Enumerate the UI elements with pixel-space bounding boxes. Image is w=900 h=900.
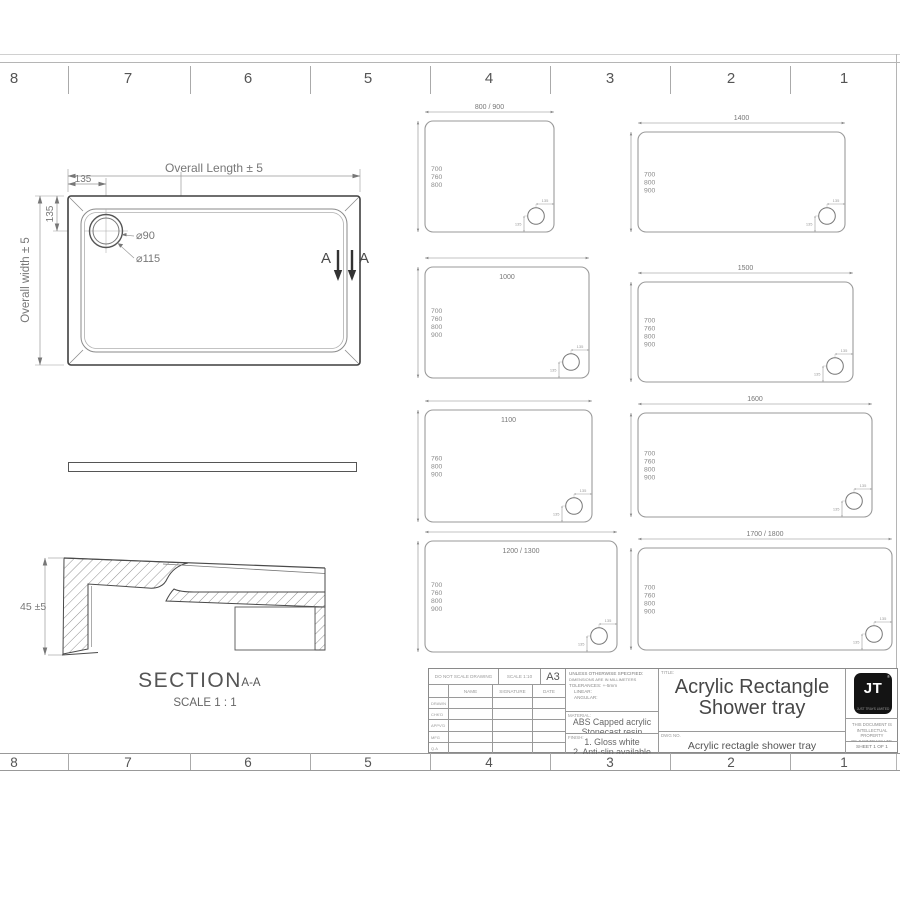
variant-height-option: 760: [644, 459, 656, 466]
approval-row-cell: [449, 698, 493, 709]
jt-logo-caption: JUST TRAYS LIMITED: [854, 707, 892, 711]
drain-outer-dia-label: ⌀115: [136, 253, 160, 265]
section-scale-label: SCALE 1 : 1: [173, 697, 236, 709]
sheet-top-inner-line: [0, 62, 900, 63]
ruler-bottom-number-2: 2: [727, 755, 735, 770]
drain-offset-v-label: 135: [853, 640, 860, 645]
dim-135-h-label: 135: [75, 174, 92, 185]
approval-row-cell: [533, 743, 566, 754]
overall-width-label: Overall width ± 5: [20, 237, 32, 323]
approval-row-cell: [449, 743, 493, 754]
variant-outline: [425, 541, 617, 652]
variant-1500: 1500700760800900135135: [624, 262, 863, 395]
ruler-top-number-5: 5: [364, 70, 372, 87]
variant-width-label: 800 / 900: [475, 104, 504, 111]
variant-drain-circle: [591, 628, 608, 645]
variant-height-option: 900: [644, 609, 656, 616]
approval-row-cell: [533, 732, 566, 743]
scale-note: SCALE 1:10: [499, 669, 541, 685]
variant-width-label: 1600: [747, 396, 763, 403]
variant-drain-circle: [866, 626, 883, 643]
signature-header: SIGNATURE: [493, 685, 533, 698]
ruler-bottom-number-6: 6: [244, 755, 252, 770]
variant-height-option: 900: [644, 475, 656, 482]
approval-row-cell: [493, 732, 533, 743]
sheet-top-outer-line: [0, 54, 900, 55]
ruler-bottom-divider: [790, 753, 791, 770]
ruler-top-number-3: 3: [606, 70, 614, 87]
variant-width-label: 1100: [501, 417, 516, 424]
section-wall-hatch: [63, 558, 188, 654]
approval-row-cell: [493, 743, 533, 754]
approval-row-cell: [493, 720, 533, 731]
variant-drain-circle: [566, 498, 583, 515]
variant-width-label: 1500: [738, 265, 754, 272]
variant-height-option: 900: [644, 188, 656, 195]
property-line: INTELLECTUAL PROPERTY: [846, 728, 898, 739]
variant-1400: 1400700800900135135: [624, 112, 855, 245]
variant-height-option: 760: [431, 316, 443, 323]
section-title-suffix: A-A: [241, 677, 261, 689]
section-view: 45 ±5 SECTION A-A SCALE 1 : 1: [18, 545, 388, 725]
drain-offset-h-label: 135: [860, 483, 867, 488]
variant-height-option: 760: [644, 593, 656, 600]
variant-height-option: 760: [431, 456, 443, 463]
drawing-title-line1: Acrylic Rectangle: [659, 677, 845, 698]
section-right-strip-hatch: [315, 607, 325, 650]
drain-offset-h-label: 135: [577, 344, 584, 349]
variant-drain-circle: [563, 354, 580, 371]
variant-height-option: 800: [644, 334, 656, 341]
side-view: [68, 462, 357, 472]
variant-1600: 1600700760800900135135: [624, 393, 882, 530]
approval-row-cell: [533, 709, 566, 720]
variant-height-option: 760: [431, 590, 443, 597]
approval-row-label: DRAWN: [429, 698, 449, 709]
variant-drain-circle: [846, 493, 863, 510]
variant-outline: [638, 548, 892, 650]
variant-height-option: 800: [431, 598, 443, 605]
variant-height-option: 700: [431, 166, 443, 173]
approval-row-cell: [449, 709, 493, 720]
material-label: MATERIAL:: [568, 713, 591, 718]
ruler-top-number-4: 4: [485, 70, 493, 87]
ruler-top-tick: [790, 66, 791, 94]
drain-offset-h-label: 135: [833, 198, 840, 203]
property-line: THIS DOCUMENT IS: [846, 722, 898, 728]
variant-800-900: 800 / 900700760800135135: [411, 101, 564, 245]
approval-row-label: Q.A: [429, 743, 449, 754]
bottom-band-bottom-line: [0, 770, 900, 771]
drain-offset-h-label: 135: [880, 616, 887, 621]
section-floor-hatch: [166, 589, 325, 607]
ruler-top-tick: [310, 66, 311, 94]
approval-row-cell: [449, 720, 493, 731]
ruler-top-number-8: 8: [10, 70, 18, 87]
variant-height-option: 700: [431, 582, 443, 589]
title-block: DO NOT SCALE DRAWING SCALE 1:10 A3 NAME …: [428, 668, 898, 753]
section-marker-letter-right: A: [359, 250, 369, 267]
variant-height-option: 700: [644, 585, 656, 592]
ruler-bottom-divider: [68, 753, 69, 770]
ruler-top-tick: [190, 66, 191, 94]
variant-1000: 1000700760800900135135: [411, 247, 599, 391]
approval-row-cell: [533, 720, 566, 731]
variant-height-option: 700: [431, 308, 443, 315]
ruler-bottom-divider: [190, 753, 191, 770]
drain-offset-h-label: 135: [605, 618, 612, 623]
drain-offset-h-label: 135: [580, 488, 587, 493]
variant-outline: [638, 413, 872, 517]
drawing-title-line2: Shower tray: [659, 698, 845, 719]
ruler-top-number-2: 2: [727, 70, 735, 87]
ruler-top-number-6: 6: [244, 70, 252, 87]
ruler-bottom-number-4: 4: [485, 755, 493, 770]
variant-height-option: 800: [644, 467, 656, 474]
section-height-dim-label: 45 ±5: [20, 601, 46, 613]
ruler-bottom-divider: [550, 753, 551, 770]
drain-offset-v-label: 135: [553, 512, 560, 517]
variant-width-label: 1200 / 1300: [503, 548, 540, 555]
property-note-cell: THIS DOCUMENT IS INTELLECTUAL PROPERTY O…: [846, 719, 898, 742]
material-block: MATERIAL: ABS Capped acrylic Stonecast r…: [566, 711, 659, 733]
tray-outer-edge: [68, 196, 360, 365]
variant-height-option: 700: [644, 451, 656, 458]
do-not-scale-note: DO NOT SCALE DRAWING: [429, 669, 499, 685]
approval-row-cell: [493, 698, 533, 709]
jt-logo: ® JT JUST TRAYS LIMITED: [854, 673, 892, 714]
section-marker-letter-left: A: [321, 250, 331, 267]
variant-height-option: 900: [431, 332, 443, 339]
finish-label: FINISH:: [568, 735, 584, 740]
approval-row-label: MFG: [429, 732, 449, 743]
ruler-top-tick: [68, 66, 69, 94]
date-header: DATE: [533, 685, 566, 698]
variant-drain-circle: [528, 208, 545, 225]
drain-offset-v-label: 135: [578, 642, 585, 647]
variant-width-label: 1000: [499, 274, 515, 281]
section-title: SECTION: [138, 669, 242, 692]
drain-offset-v-label: 135: [833, 507, 840, 512]
logo-cell: ® JT JUST TRAYS LIMITED: [846, 669, 898, 719]
spec-block: UNLESS OTHERWISE SPECIFIED: DIMENSIONS A…: [566, 669, 659, 711]
variant-1200-1300: 1200 / 1300700760800900135135: [411, 521, 627, 665]
variant-height-option: 900: [431, 606, 443, 613]
ruler-bottom-number-3: 3: [606, 755, 614, 770]
approval-row-cell: [449, 732, 493, 743]
drain-offset-v-label: 135: [550, 368, 557, 373]
approval-row-cell: [493, 709, 533, 720]
finish-line: 2. Anti-slip available: [566, 748, 658, 755]
approval-label-header: [429, 685, 449, 698]
ruler-bottom-divider: [430, 753, 431, 770]
overall-length-label: Overall Length ± 5: [165, 161, 263, 175]
title-label: TITLE:: [661, 670, 674, 675]
ruler-bottom-divider: [310, 753, 311, 770]
variant-width-label: 1400: [734, 115, 750, 122]
approval-row-label: CHK'D: [429, 709, 449, 720]
drain-offset-h-label: 135: [542, 198, 549, 203]
dwg-no-value: Acrylic rectagle shower tray: [659, 740, 845, 752]
dwg-no-label: DWG NO.: [661, 733, 681, 738]
ruler-top-tick: [670, 66, 671, 94]
dwg-no-cell: DWG NO. Acrylic rectagle shower tray: [659, 732, 846, 754]
variant-height-option: 760: [431, 174, 443, 181]
variant-height-option: 900: [644, 342, 656, 349]
jt-logo-text: JT: [854, 680, 892, 697]
paper-size: A3: [541, 669, 566, 685]
variant-drain-circle: [819, 208, 836, 225]
drain-offset-v-label: 135: [814, 372, 821, 377]
variant-height-option: 700: [644, 318, 656, 325]
ruler-bottom-number-8: 8: [10, 755, 18, 770]
variant-height-option: 900: [431, 472, 443, 479]
approval-row-label: APPV'D: [429, 720, 449, 731]
name-header: NAME: [449, 685, 493, 698]
drawing-sheet: 87654321 87654321 Overall Length ± 5 Ove…: [0, 0, 900, 900]
variant-1100: 1100760800900135135: [411, 390, 602, 535]
variant-height-option: 800: [431, 324, 443, 331]
spec-line: ANGULAR:: [569, 695, 655, 701]
ruler-bottom-divider: [670, 753, 671, 770]
drain-offset-h-label: 135: [841, 348, 848, 353]
variant-height-option: 800: [644, 180, 656, 187]
variant-outline: [638, 132, 845, 232]
registered-mark: ®: [887, 674, 890, 679]
ruler-top-number-7: 7: [124, 70, 132, 87]
ruler-top-number-1: 1: [840, 70, 848, 87]
variant-height-option: 800: [644, 601, 656, 608]
finish-block: FINISH: 1. Gloss white 2. Anti-slip avai…: [566, 733, 659, 754]
sheet-number-cell: SHEET 1 OF 1: [846, 742, 898, 753]
variant-1700-1800: 1700 / 1800700760800900135135: [624, 528, 900, 663]
drain-offset-v-label: 135: [515, 222, 522, 227]
ruler-top-tick: [550, 66, 551, 94]
variant-height-option: 800: [431, 464, 443, 471]
drain-inner-dia-label: ⌀90: [136, 230, 155, 242]
variant-height-option: 700: [644, 172, 656, 179]
approval-row-cell: [533, 698, 566, 709]
section-void: [235, 607, 315, 650]
ruler-bottom-number-7: 7: [124, 755, 132, 770]
variant-width-label: 1700 / 1800: [747, 531, 784, 538]
ruler-bottom-number-5: 5: [364, 755, 372, 770]
dim-135-v-label: 135: [45, 205, 56, 222]
title-cell: TITLE: Acrylic Rectangle Shower tray: [659, 669, 846, 732]
variant-height-option: 760: [644, 326, 656, 333]
variant-height-option: 800: [431, 182, 443, 189]
drain-offset-v-label: 135: [806, 222, 813, 227]
ruler-bottom-number-1: 1: [840, 755, 848, 770]
plan-view: Overall Length ± 5 Overall width ± 5 135…: [20, 148, 410, 393]
ruler-top-tick: [430, 66, 431, 94]
variant-outline: [638, 282, 853, 382]
variant-drain-circle: [827, 358, 844, 375]
